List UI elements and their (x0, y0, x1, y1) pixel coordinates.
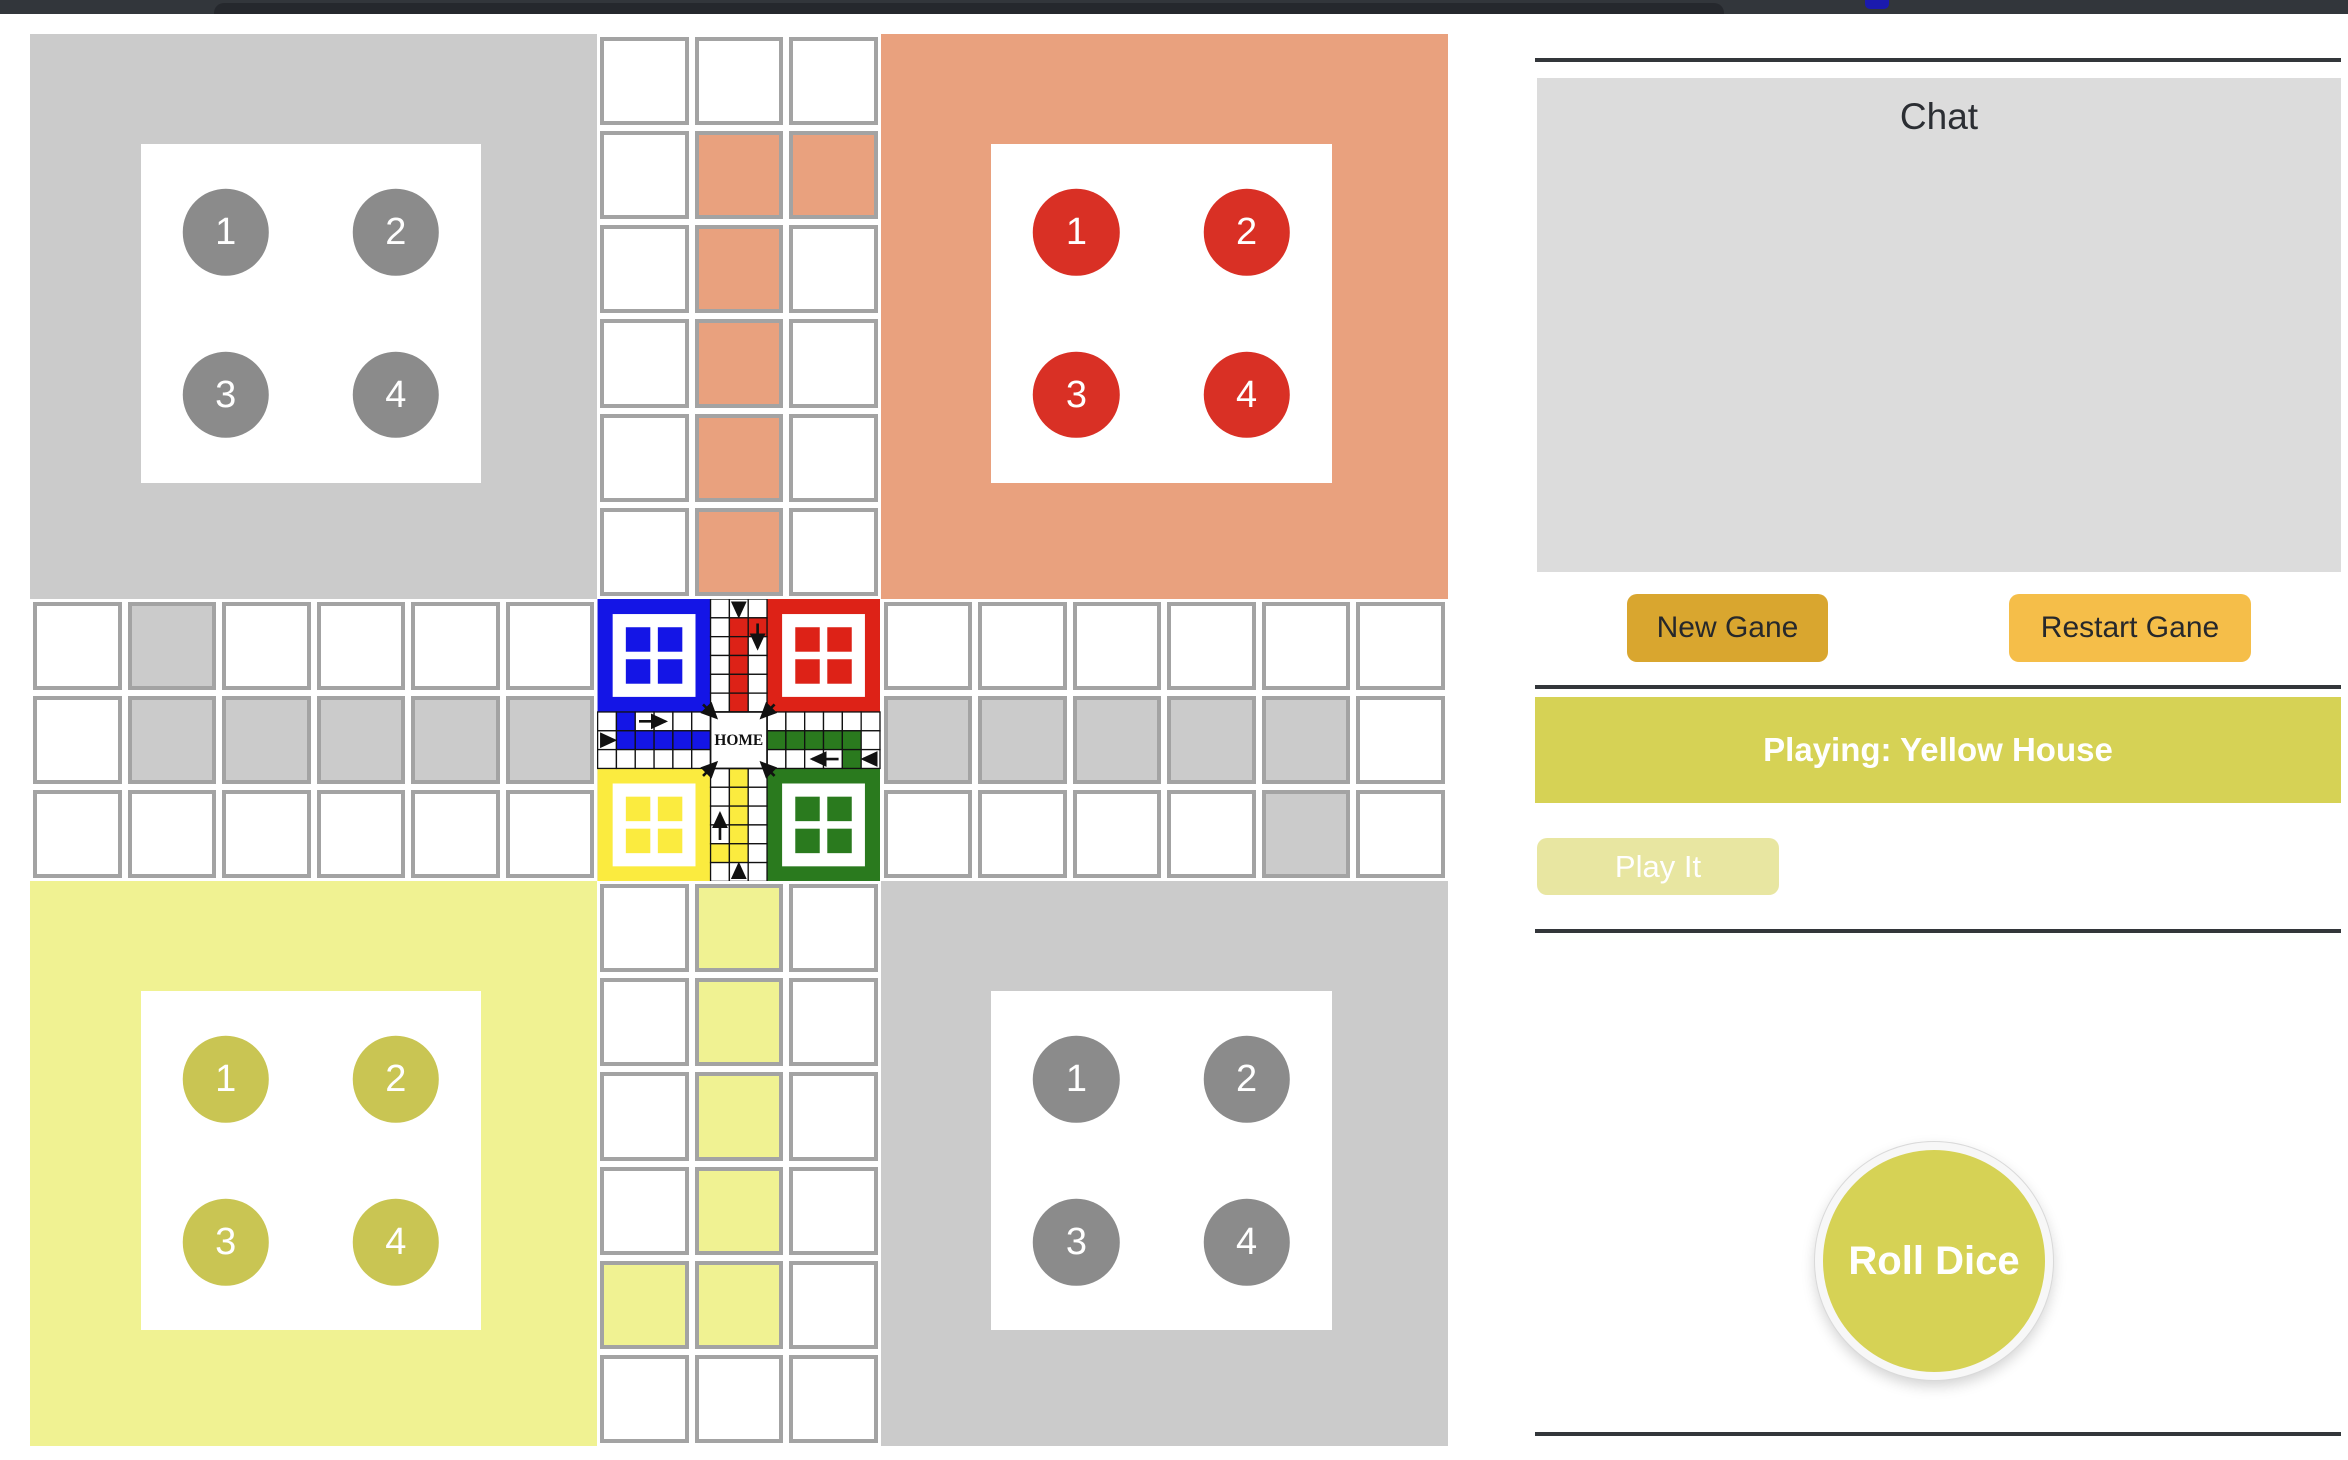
path-cell (975, 787, 1070, 881)
path-cell (692, 1069, 787, 1163)
path-cell (692, 1164, 787, 1258)
status-banner: Playing: Yellow House (1535, 697, 2341, 803)
path-cell (597, 316, 692, 410)
path-cell (786, 881, 881, 975)
path-cell (597, 1069, 692, 1163)
path-cell (692, 411, 787, 505)
path-cell (692, 316, 787, 410)
path-cell (125, 693, 220, 787)
path-cell (597, 1164, 692, 1258)
svg-text:HOME: HOME (715, 732, 764, 749)
piece-token[interactable]: 2 (353, 189, 439, 275)
path-cell (314, 787, 409, 881)
browser-tab-strip (214, 3, 1724, 14)
path-cell (597, 411, 692, 505)
path-cell (597, 222, 692, 316)
piece-home-box: 1234 (991, 991, 1331, 1330)
piece-token[interactable]: 3 (182, 1199, 268, 1285)
piece-token[interactable]: 1 (1033, 189, 1119, 275)
path-cell (975, 599, 1070, 693)
path-cell (503, 787, 598, 881)
divider-play (1535, 929, 2341, 933)
path-cell (314, 599, 409, 693)
path-cell (786, 222, 881, 316)
path-cell (786, 34, 881, 128)
divider-buttons (1535, 685, 2341, 689)
new-game-button[interactable]: New Gane (1627, 594, 1828, 662)
quadrant-bottom-left: 1234 (30, 881, 597, 1446)
path-cell (786, 505, 881, 599)
path-cell (1259, 693, 1354, 787)
quadrant-top-left: 1234 (30, 34, 597, 599)
path-cell (786, 1069, 881, 1163)
path-cell (1164, 693, 1259, 787)
path-cell (30, 693, 125, 787)
path-cell (408, 693, 503, 787)
path-cell (597, 975, 692, 1069)
path-cell (219, 787, 314, 881)
restart-game-button[interactable]: Restart Gane (2009, 594, 2251, 662)
path-cell (1070, 599, 1165, 693)
path-cell (692, 881, 787, 975)
roll-dice-button[interactable]: Roll Dice (1815, 1142, 2053, 1380)
divider-bottom (1535, 1432, 2341, 1436)
path-cell (692, 505, 787, 599)
path-cell (786, 975, 881, 1069)
piece-home-box: 1234 (141, 144, 481, 483)
path-cell (125, 787, 220, 881)
path-cell (1353, 787, 1448, 881)
path-cell (786, 1352, 881, 1446)
path-cell (692, 975, 787, 1069)
piece-token[interactable]: 2 (353, 1036, 439, 1122)
piece-token[interactable]: 4 (1203, 352, 1289, 438)
path-cell (786, 1164, 881, 1258)
path-cell (881, 693, 976, 787)
path-cell (597, 128, 692, 222)
path-cell (786, 128, 881, 222)
path-cell (1353, 693, 1448, 787)
path-cell (975, 693, 1070, 787)
path-cell (597, 505, 692, 599)
piece-token[interactable]: 4 (353, 1199, 439, 1285)
piece-token[interactable]: 4 (1203, 1199, 1289, 1285)
path-cell (786, 411, 881, 505)
path-cell (597, 1352, 692, 1446)
path-cell (30, 599, 125, 693)
piece-home-box: 1234 (991, 144, 1331, 483)
piece-home-box: 1234 (141, 991, 481, 1330)
path-cell (314, 693, 409, 787)
divider-top (1535, 58, 2341, 62)
path-cell (1070, 693, 1165, 787)
play-it-button[interactable]: Play It (1537, 838, 1779, 895)
path-cell (1164, 599, 1259, 693)
chat-title: Chat (1537, 78, 2341, 138)
path-cell (1070, 787, 1165, 881)
quadrant-bottom-right: 1234 (881, 881, 1448, 1446)
path-cell (1353, 599, 1448, 693)
path-cell (786, 316, 881, 410)
path-cell (30, 787, 125, 881)
quadrant-top-right: 1234 (881, 34, 1448, 599)
piece-token[interactable]: 1 (1033, 1036, 1119, 1122)
path-cell (692, 1352, 787, 1446)
piece-token[interactable]: 1 (182, 1036, 268, 1122)
path-cell (597, 881, 692, 975)
center-home-image: HOME (597, 599, 881, 881)
path-cell (125, 599, 220, 693)
path-cell (692, 128, 787, 222)
path-cell (219, 693, 314, 787)
ludo-board: 1234 1234 1234 1234 HOME (30, 34, 1448, 1446)
path-cell (1259, 599, 1354, 693)
path-cell (219, 599, 314, 693)
path-cell (597, 34, 692, 128)
chat-box: Chat (1537, 78, 2341, 572)
path-cell (408, 787, 503, 881)
path-cell (503, 693, 598, 787)
path-cell (408, 599, 503, 693)
path-cell (692, 34, 787, 128)
piece-token[interactable]: 2 (1203, 1036, 1289, 1122)
piece-token[interactable]: 2 (1203, 189, 1289, 275)
path-cell (881, 599, 976, 693)
path-cell (692, 222, 787, 316)
piece-token[interactable]: 1 (182, 189, 268, 275)
piece-token[interactable]: 3 (1033, 1199, 1119, 1285)
path-cell (503, 599, 598, 693)
path-cell (1164, 787, 1259, 881)
path-cell (692, 1258, 787, 1352)
path-cell (786, 1258, 881, 1352)
piece-token[interactable]: 3 (1033, 352, 1119, 438)
piece-token[interactable]: 4 (353, 352, 439, 438)
path-cell (1259, 787, 1354, 881)
path-cell (597, 1258, 692, 1352)
piece-token[interactable]: 3 (182, 352, 268, 438)
path-cell (881, 787, 976, 881)
